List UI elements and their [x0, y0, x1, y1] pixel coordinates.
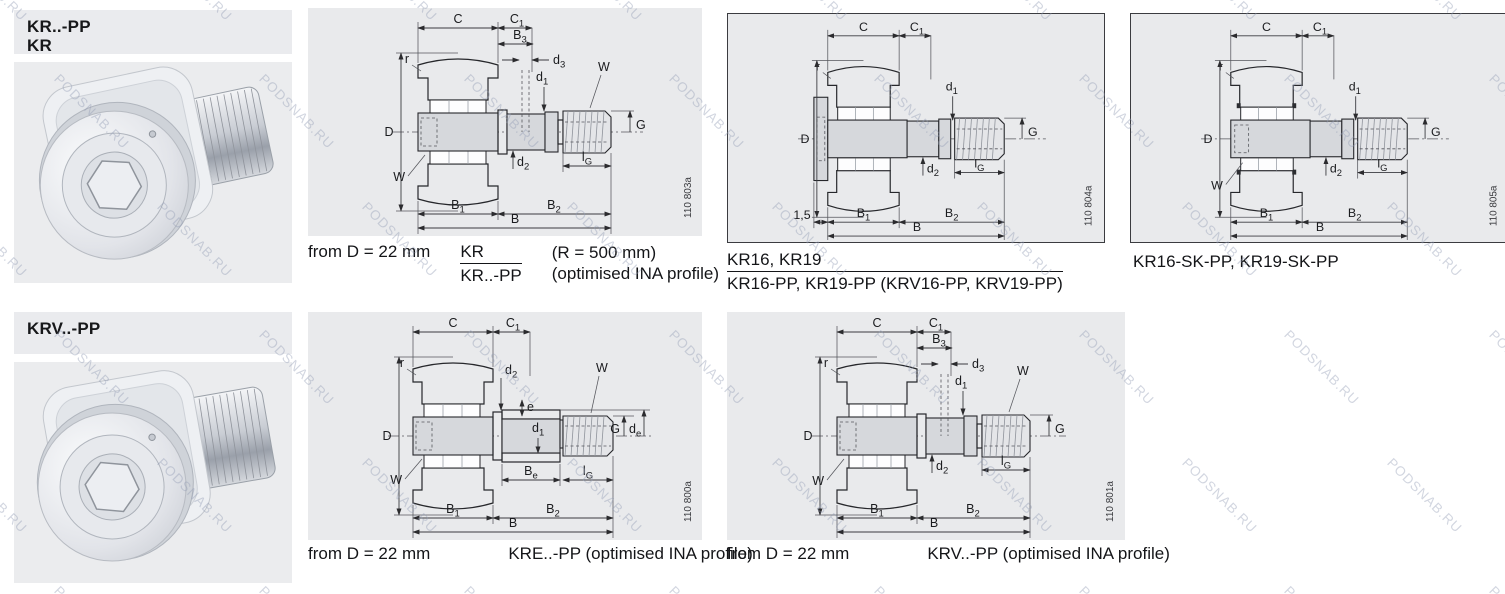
rollers-upper — [1241, 107, 1294, 120]
stud-core — [418, 113, 498, 151]
stud-core — [413, 417, 493, 455]
lube-hole — [148, 434, 155, 441]
caption-kr16-line1: KR16, KR19 — [727, 250, 1063, 272]
dim-label-d1: d1 — [946, 79, 958, 95]
product-photo-krv — [14, 362, 292, 583]
caption-kr16: KR16, KR19 KR16-PP, KR19-PP (KRV16-PP, K… — [727, 250, 1063, 294]
caption-kr-fraction-bottom: KR..-PP — [460, 264, 521, 286]
dim-label-b3: B3 — [932, 332, 946, 350]
dim-label-w-top: W — [1017, 364, 1029, 378]
dim-label-b3: B3 — [513, 28, 527, 46]
dim-label-b2: B2 — [1348, 206, 1362, 222]
technical-drawing-kr16-sk: C C1 r d1 D W d2 G lG B1 B2 B 110 805a — [1131, 14, 1505, 242]
series-header-krv: KRV..-PP — [14, 312, 292, 354]
dim-label-offset: 1,5 — [793, 208, 810, 222]
stud-d2-section — [907, 121, 939, 157]
dim-label-de: de — [629, 422, 641, 440]
dim-label-b: B — [1316, 220, 1324, 234]
dim-label-b2: B2 — [945, 206, 959, 222]
dim-label-d-outer: D — [1204, 132, 1213, 146]
dim-label-r: r — [824, 356, 828, 370]
rollers-upper — [838, 107, 891, 120]
caption-krv: from D = 22 mm KRV..-PP (optimised INA p… — [727, 544, 1170, 564]
dim-label-b2: B2 — [546, 502, 560, 520]
dim-label-c1: C1 — [510, 12, 524, 30]
dim-label-c: C — [872, 316, 881, 330]
series-title-krv-pp: KRV..-PP — [27, 319, 279, 338]
dim-label-b1: B1 — [451, 198, 465, 216]
dim-label-d-outer: D — [803, 429, 812, 443]
dim-label-d-outer: D — [384, 125, 393, 139]
drawing-panel-krv: C C1 B3 d3 d1 W r D W d2 lG G B1 B2 B 11… — [727, 312, 1125, 540]
dim-label-c1: C1 — [910, 20, 924, 36]
dim-label-d2: d2 — [1330, 162, 1342, 178]
dim-label-d1: d1 — [536, 70, 548, 88]
dim-label-w-top: W — [596, 361, 608, 375]
dim-label-d2: d2 — [517, 155, 529, 173]
product-photo-box-kr — [14, 62, 292, 283]
caption-kr-fraction-top: KR — [460, 242, 521, 264]
dim-label-r: r — [1219, 60, 1223, 74]
dim-label-d2: d2 — [936, 459, 948, 477]
dim-label-c: C — [453, 12, 462, 26]
dim-label-g: G — [610, 422, 620, 436]
dim-label-b: B — [509, 516, 517, 530]
figure-number: 110 804a — [1083, 185, 1094, 226]
catalog-page: { "watermark": "PODSNAB.RU", "left_colum… — [0, 0, 1505, 594]
product-photo-box-krv — [14, 362, 292, 583]
figure-number: 110 800a — [683, 481, 694, 522]
rollers-lower — [1241, 158, 1294, 171]
thread-section — [563, 111, 611, 153]
caption-kr16-sk: KR16-SK-PP, KR19-SK-PP — [1133, 252, 1339, 272]
needle-rollers-lower — [430, 151, 486, 164]
watermark-text: PODSNAB.RU — [256, 583, 337, 594]
stud-d2-section — [1310, 121, 1342, 157]
needle-rollers-lower — [424, 455, 480, 468]
stud-shoulder — [1342, 119, 1354, 159]
watermark-text: PODSNAB.RU — [51, 583, 132, 594]
dim-label-d1: d1 — [1349, 79, 1361, 95]
dim-label-w-bottom: W — [390, 473, 402, 487]
series-title-kr-pp: KR..-PP — [27, 17, 279, 36]
stud-core — [837, 417, 917, 455]
caption-kre-text: KRE..-PP (optimised INA profile) — [508, 544, 752, 564]
stud-d2-section — [507, 114, 545, 150]
dim-label-b2: B2 — [966, 502, 980, 520]
caption-kre: from D = 22 mm KRE..-PP (optimised INA p… — [308, 544, 753, 564]
stud-shoulder — [545, 112, 558, 152]
technical-drawing-krv: C C1 B3 d3 d1 W r D W d2 lG G B1 B2 B 11… — [727, 312, 1125, 540]
dim-label-b1: B1 — [857, 206, 870, 222]
dim-label-g: G — [1431, 125, 1441, 139]
dim-label-b1: B1 — [870, 502, 884, 520]
watermark-text: PODSNAB.RU — [1281, 583, 1362, 594]
dim-label-d2: d2 — [505, 363, 517, 381]
caption-kr-fraction: KR KR..-PP — [460, 242, 521, 286]
dim-label-r: r — [405, 52, 409, 66]
dim-label-c: C — [448, 316, 457, 330]
caption-kr-note2: (optimised INA profile) — [552, 263, 719, 284]
caption-kr: from D = 22 mm KR KR..-PP (R = 500 mm) (… — [308, 242, 719, 286]
caption-kr-note1: (R = 500 mm) — [552, 242, 719, 263]
stud-core — [828, 120, 907, 158]
thread-section — [955, 118, 1005, 160]
caption-krv-text: KRV..-PP (optimised INA profile) — [927, 544, 1170, 564]
caption-kr16-fraction: KR16, KR19 KR16-PP, KR19-PP (KRV16-PP, K… — [727, 250, 1063, 294]
watermark-text: PODSNAB.RU — [1076, 583, 1157, 594]
dim-label-lg: lG — [583, 464, 593, 482]
dim-label-w-bottom: W — [1211, 178, 1223, 192]
watermark-text: PODSNAB.RU — [1281, 327, 1362, 408]
dim-label-w-bottom: W — [812, 474, 824, 488]
watermark-text: PODSNAB.RU — [461, 583, 542, 594]
technical-drawing-kr: C C1 B3 d3 d1 W r D W d2 lG G B1 B2 B 11… — [308, 8, 702, 236]
thread-section — [1358, 118, 1408, 160]
watermark-text: PODSNAB.RU — [1486, 327, 1505, 408]
caption-kr-notes: (R = 500 mm) (optimised INA profile) — [552, 242, 719, 284]
drawing-panel-kr16: C C1 r d1 D d2 G lG 1,5 B1 B2 B 110 804a — [727, 13, 1105, 243]
figure-number: 110 801a — [1105, 481, 1116, 522]
dim-label-w-top: W — [598, 60, 610, 74]
dim-label-g: G — [1055, 422, 1065, 436]
caption-kr-prefix: from D = 22 mm — [308, 242, 430, 262]
watermark-text: PODSNAB.RU — [1179, 455, 1260, 536]
dim-label-b1: B1 — [1260, 206, 1273, 222]
caption-kre-prefix: from D = 22 mm — [308, 544, 430, 564]
needle-rollers-upper — [430, 100, 486, 113]
dim-label-c1: C1 — [1313, 20, 1327, 36]
technical-drawing-kr16: C C1 r d1 D d2 G lG 1,5 B1 B2 B 110 804a — [728, 14, 1104, 242]
caption-kr16-sk-text: KR16-SK-PP, KR19-SK-PP — [1133, 252, 1339, 272]
drawing-panel-kr: C C1 B3 d3 d1 W r D W d2 lG G B1 B2 B 11… — [308, 8, 702, 236]
drawing-panel-kr16-sk: C C1 r d1 D W d2 G lG B1 B2 B 110 805a — [1130, 13, 1505, 243]
dim-label-b: B — [913, 220, 921, 234]
dim-label-g: G — [636, 118, 646, 132]
dim-label-d3: d3 — [553, 53, 565, 71]
dim-label-b2: B2 — [547, 198, 561, 216]
stud-head — [814, 97, 828, 180]
watermark-text: PODSNAB.RU — [1384, 455, 1465, 536]
dim-label-c1: C1 — [929, 316, 943, 334]
dim-label-g: G — [1028, 125, 1038, 139]
dim-label-r: r — [400, 356, 404, 370]
caption-kr16-line2: KR16-PP, KR19-PP (KRV16-PP, KRV19-PP) — [727, 272, 1063, 294]
watermark-text: PODSNAB.RU — [871, 583, 952, 594]
dim-label-b: B — [930, 516, 938, 530]
dim-label-b: B — [511, 212, 519, 226]
technical-drawing-kre: C C1 r d2 e d1 W D W G de Be lG B1 B2 B … — [308, 312, 702, 540]
dim-label-d-outer: D — [801, 132, 810, 146]
series-header-kr: KR..-PP KR — [14, 10, 292, 54]
dim-label-be: Be — [524, 464, 538, 482]
dim-label-c: C — [1262, 20, 1271, 34]
dim-label-d-outer: D — [382, 429, 391, 443]
stud-shoulder — [939, 119, 951, 159]
drawing-panel-kre: C C1 r d2 e d1 W D W G de Be lG B1 B2 B … — [308, 312, 702, 540]
figure-number: 110 803a — [683, 177, 694, 218]
figure-number: 110 805a — [1488, 185, 1499, 226]
stud-d2-section — [926, 418, 964, 454]
series-title-kr: KR — [27, 36, 279, 55]
watermark-text: PODSNAB.RU — [1486, 583, 1505, 594]
thread-section — [563, 416, 613, 456]
eccentric-collar — [502, 410, 560, 462]
dim-label-e: e — [527, 400, 534, 414]
dim-label-r: r — [816, 60, 820, 74]
stud-core — [1231, 120, 1310, 158]
dim-label-c1: C1 — [506, 316, 520, 334]
thread-section — [982, 415, 1030, 457]
dim-label-c: C — [859, 20, 868, 34]
watermark-text: PODSNAB.RU — [666, 583, 747, 594]
dim-label-w-bottom: W — [393, 170, 405, 184]
rollers-lower — [838, 158, 891, 171]
needle-rollers-upper — [424, 404, 480, 417]
stud-shoulder — [964, 416, 977, 456]
dim-label-d3: d3 — [972, 357, 984, 375]
dim-label-d2: d2 — [927, 162, 939, 178]
caption-krv-prefix: from D = 22 mm — [727, 544, 849, 564]
dim-label-b1: B1 — [446, 502, 460, 520]
product-photo-kr — [14, 62, 292, 283]
dim-label-d1: d1 — [955, 374, 967, 392]
